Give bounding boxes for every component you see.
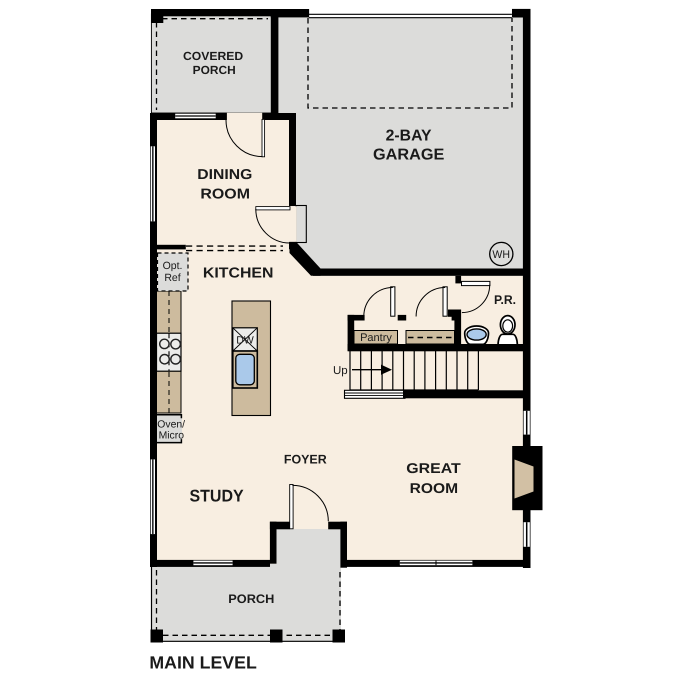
svg-text:STUDY: STUDY (190, 487, 245, 506)
svg-text:ROOM: ROOM (410, 481, 458, 497)
svg-text:WH: WH (492, 249, 510, 261)
svg-text:KITCHEN: KITCHEN (203, 266, 274, 282)
svg-text:DINING: DINING (197, 167, 252, 183)
svg-text:ROOM: ROOM (200, 187, 250, 203)
svg-text:2-BAY: 2-BAY (386, 128, 432, 145)
svg-text:Up: Up (333, 365, 348, 377)
svg-text:P.R.: P.R. (494, 293, 516, 307)
svg-text:Opt.: Opt. (163, 260, 183, 272)
svg-text:PORCH: PORCH (228, 592, 274, 606)
svg-text:GARAGE: GARAGE (373, 147, 444, 164)
svg-text:DW: DW (236, 335, 254, 347)
svg-text:Ref: Ref (164, 272, 180, 284)
svg-text:GREAT: GREAT (406, 461, 461, 477)
svg-text:Oven/: Oven/ (157, 419, 185, 430)
svg-text:Pantry: Pantry (360, 332, 392, 344)
svg-text:PORCH: PORCH (193, 63, 236, 77)
svg-text:COVERED: COVERED (183, 49, 244, 63)
svg-text:Micro: Micro (159, 431, 185, 442)
svg-text:MAIN LEVEL: MAIN LEVEL (149, 652, 257, 672)
svg-text:FOYER: FOYER (284, 452, 327, 466)
